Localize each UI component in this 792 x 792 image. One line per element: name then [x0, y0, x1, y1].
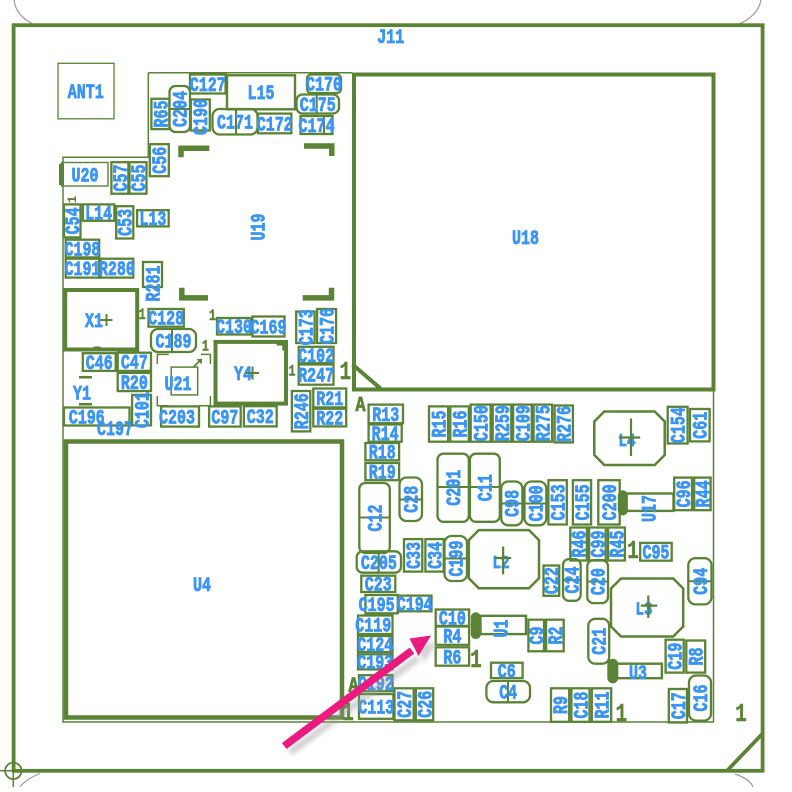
svg-text:C61: C61 — [691, 412, 714, 439]
svg-text:C4: C4 — [499, 683, 517, 706]
svg-text:C28: C28 — [402, 486, 425, 513]
svg-text:1: 1 — [339, 357, 351, 387]
svg-text:U19: U19 — [248, 214, 271, 241]
svg-text:U1: U1 — [491, 620, 514, 638]
svg-text:C97: C97 — [211, 407, 238, 430]
svg-text:C53: C53 — [116, 209, 139, 236]
svg-text:R22: R22 — [316, 408, 343, 431]
svg-text:C95: C95 — [642, 543, 669, 566]
svg-text:C46: C46 — [86, 353, 113, 376]
svg-text:C32: C32 — [247, 407, 274, 430]
svg-text:R4: R4 — [443, 627, 461, 650]
svg-text:1: 1 — [65, 195, 80, 203]
svg-text:L13: L13 — [139, 209, 166, 232]
svg-text:C191: C191 — [64, 259, 100, 282]
svg-text:C205: C205 — [361, 553, 397, 576]
svg-text:U20: U20 — [72, 165, 99, 188]
svg-text:C175: C175 — [300, 95, 336, 118]
svg-text:C174: C174 — [299, 116, 335, 139]
svg-text:C12: C12 — [365, 505, 388, 532]
svg-text:R246: R246 — [292, 393, 315, 429]
svg-text:C100: C100 — [526, 485, 549, 521]
svg-text:C150: C150 — [472, 405, 495, 441]
svg-text:C155: C155 — [573, 484, 596, 520]
svg-text:X1: X1 — [85, 311, 103, 334]
svg-text:1: 1 — [139, 306, 146, 324]
svg-text:R247: R247 — [298, 365, 334, 388]
svg-text:R44: R44 — [693, 480, 716, 507]
svg-text:R275: R275 — [534, 405, 557, 441]
svg-text:C55: C55 — [129, 164, 152, 191]
svg-text:U18: U18 — [512, 228, 539, 251]
svg-text:C171: C171 — [217, 113, 253, 136]
svg-text:C20: C20 — [589, 568, 612, 595]
svg-text:R6: R6 — [443, 647, 461, 670]
svg-text:J11: J11 — [377, 27, 404, 50]
svg-text:1: 1 — [202, 338, 209, 356]
svg-text:C16: C16 — [691, 685, 714, 712]
svg-text:U3: U3 — [629, 663, 647, 686]
svg-text:C101: C101 — [132, 392, 155, 428]
svg-text:1: 1 — [735, 699, 747, 729]
svg-text:R11: R11 — [592, 692, 615, 719]
svg-text:C194: C194 — [397, 594, 433, 617]
svg-text:C197: C197 — [97, 419, 133, 442]
svg-text:R8: R8 — [687, 648, 710, 666]
svg-text:C199: C199 — [447, 541, 470, 577]
svg-text:1: 1 — [627, 536, 639, 566]
svg-text:C21: C21 — [590, 628, 613, 655]
svg-text:ANT1: ANT1 — [68, 82, 104, 105]
svg-text:U4: U4 — [193, 575, 211, 598]
svg-text:1: 1 — [470, 645, 482, 675]
svg-text:C173: C173 — [296, 309, 319, 345]
svg-text:C56: C56 — [150, 147, 173, 174]
svg-text:C26: C26 — [415, 691, 438, 718]
svg-text:R2: R2 — [546, 627, 569, 645]
svg-text:C154: C154 — [669, 407, 692, 443]
svg-text:Y1: Y1 — [73, 383, 91, 406]
svg-text:L14: L14 — [85, 203, 112, 226]
svg-text:C172: C172 — [257, 114, 293, 137]
svg-text:C153: C153 — [548, 484, 571, 520]
svg-text:C189: C189 — [156, 331, 192, 354]
svg-text:C203: C203 — [159, 407, 195, 430]
svg-text:Y4: Y4 — [234, 364, 252, 387]
svg-text:1: 1 — [288, 363, 295, 381]
svg-text:R15: R15 — [429, 411, 452, 438]
svg-text:C127: C127 — [190, 75, 226, 98]
svg-text:L4: L4 — [619, 432, 636, 452]
svg-text:U17: U17 — [639, 495, 662, 522]
svg-text:C190: C190 — [191, 99, 214, 135]
svg-text:1: 1 — [615, 699, 627, 729]
svg-text:R276: R276 — [555, 406, 578, 442]
svg-text:C201: C201 — [444, 470, 467, 506]
svg-text:L15: L15 — [248, 83, 275, 106]
svg-text:C169: C169 — [251, 317, 287, 340]
svg-text:C98: C98 — [503, 490, 526, 517]
svg-text:U21: U21 — [165, 374, 192, 397]
svg-text:C11: C11 — [476, 474, 499, 501]
svg-text:C130: C130 — [216, 317, 252, 340]
svg-text:L3: L3 — [636, 601, 653, 621]
svg-text:A: A — [356, 395, 366, 418]
svg-text:R281: R281 — [143, 266, 166, 302]
svg-text:C24: C24 — [563, 566, 586, 593]
svg-text:C94: C94 — [691, 568, 714, 595]
svg-text:R280: R280 — [99, 259, 135, 282]
svg-text:C19: C19 — [666, 643, 689, 670]
svg-text:C33: C33 — [404, 542, 427, 569]
svg-text:C176: C176 — [317, 308, 340, 344]
